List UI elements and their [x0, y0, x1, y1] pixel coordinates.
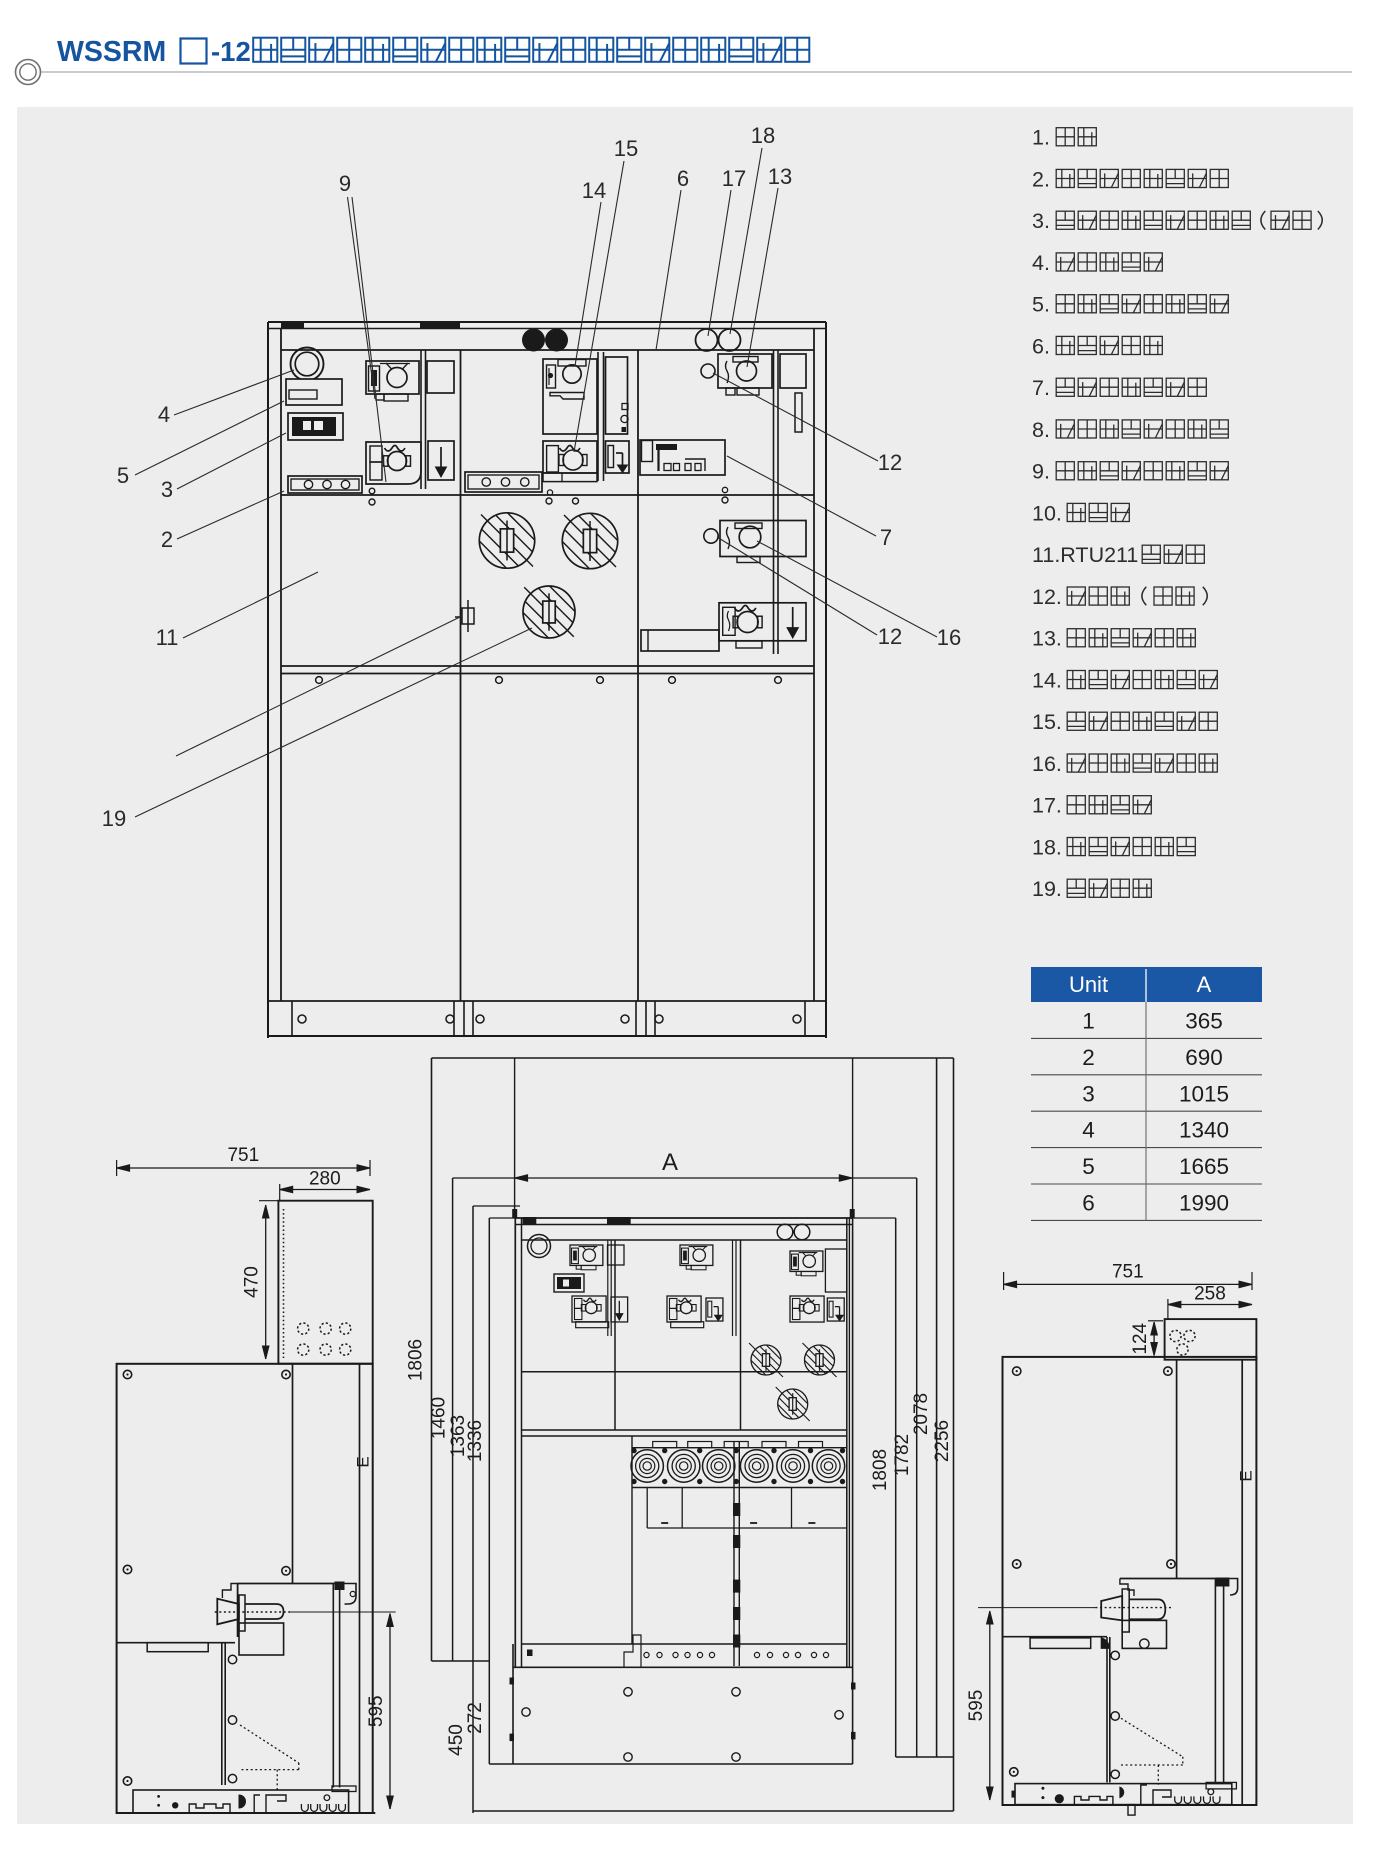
svg-text:2: 2 — [1082, 1045, 1095, 1070]
svg-text:450: 450 — [446, 1724, 467, 1756]
svg-text:8.: 8. — [1032, 418, 1050, 442]
svg-text:14: 14 — [582, 178, 606, 203]
svg-text:258: 258 — [1194, 1284, 1226, 1305]
svg-text:365: 365 — [1185, 1009, 1223, 1034]
svg-text:1.: 1. — [1032, 126, 1050, 150]
svg-text:12.: 12. — [1032, 585, 1062, 609]
svg-text:2: 2 — [161, 527, 173, 552]
svg-text:16.: 16. — [1032, 752, 1062, 776]
svg-text:Unit: Unit — [1069, 972, 1108, 997]
svg-text:2078: 2078 — [911, 1393, 932, 1435]
svg-text:7: 7 — [880, 525, 892, 550]
svg-text:595: 595 — [966, 1690, 987, 1722]
svg-text:3: 3 — [1082, 1081, 1095, 1106]
svg-text:9: 9 — [339, 171, 351, 196]
svg-text:1460: 1460 — [429, 1397, 450, 1439]
svg-text:470: 470 — [242, 1266, 263, 1298]
svg-text:18: 18 — [751, 123, 775, 148]
svg-text:13.: 13. — [1032, 627, 1062, 651]
svg-text:1340: 1340 — [1179, 1118, 1229, 1143]
svg-text:14.: 14. — [1032, 668, 1062, 692]
svg-text:13: 13 — [768, 164, 792, 189]
svg-text:1: 1 — [1082, 1009, 1095, 1034]
svg-text:690: 690 — [1185, 1045, 1223, 1070]
svg-text:15.: 15. — [1032, 710, 1062, 734]
svg-text:16: 16 — [937, 625, 961, 650]
svg-text:1336: 1336 — [465, 1420, 486, 1462]
svg-text:17.: 17. — [1032, 794, 1062, 818]
svg-text:17: 17 — [722, 166, 746, 191]
svg-text:A: A — [1197, 972, 1212, 997]
svg-text:10.: 10. — [1032, 501, 1062, 525]
svg-text:1015: 1015 — [1179, 1081, 1229, 1106]
svg-text:4: 4 — [158, 402, 170, 427]
svg-text:12: 12 — [878, 450, 902, 475]
svg-text:3.: 3. — [1032, 209, 1050, 233]
svg-text:-12: -12 — [211, 36, 251, 67]
svg-text:5.: 5. — [1032, 293, 1050, 317]
svg-text:6: 6 — [677, 166, 689, 191]
svg-text:272: 272 — [465, 1702, 486, 1734]
svg-text:595: 595 — [366, 1695, 387, 1727]
svg-text:19.: 19. — [1032, 877, 1062, 901]
svg-text:280: 280 — [309, 1169, 341, 1190]
svg-text:3: 3 — [161, 477, 173, 502]
svg-text:WSSRM: WSSRM — [57, 36, 166, 68]
svg-text:1806: 1806 — [406, 1339, 427, 1381]
svg-text:12: 12 — [878, 624, 902, 649]
svg-text:4: 4 — [1082, 1118, 1095, 1143]
svg-text:2256: 2256 — [932, 1420, 953, 1462]
svg-text:19: 19 — [102, 806, 126, 831]
svg-text:1782: 1782 — [892, 1434, 913, 1476]
svg-text:11: 11 — [156, 625, 179, 650]
svg-text:124: 124 — [1130, 1322, 1151, 1354]
svg-text:E: E — [354, 1456, 373, 1467]
svg-text:2.: 2. — [1032, 167, 1050, 191]
svg-text:5: 5 — [1082, 1154, 1095, 1179]
svg-text:4.: 4. — [1032, 251, 1050, 275]
svg-text:1990: 1990 — [1179, 1191, 1229, 1216]
svg-text:1665: 1665 — [1179, 1154, 1229, 1179]
svg-text:5: 5 — [117, 463, 129, 488]
svg-text:7.: 7. — [1032, 376, 1050, 400]
svg-text:1808: 1808 — [870, 1449, 891, 1491]
svg-text:6: 6 — [1082, 1191, 1095, 1216]
svg-text:751: 751 — [1112, 1261, 1144, 1282]
svg-text:18.: 18. — [1032, 835, 1062, 859]
svg-text:E: E — [1237, 1470, 1256, 1481]
svg-text:11.RTU211: 11.RTU211 — [1032, 543, 1138, 567]
svg-text:9.: 9. — [1032, 460, 1050, 484]
svg-text:751: 751 — [227, 1145, 259, 1166]
svg-text:A: A — [662, 1149, 678, 1176]
svg-text:15: 15 — [614, 136, 638, 161]
svg-text:6.: 6. — [1032, 334, 1050, 358]
